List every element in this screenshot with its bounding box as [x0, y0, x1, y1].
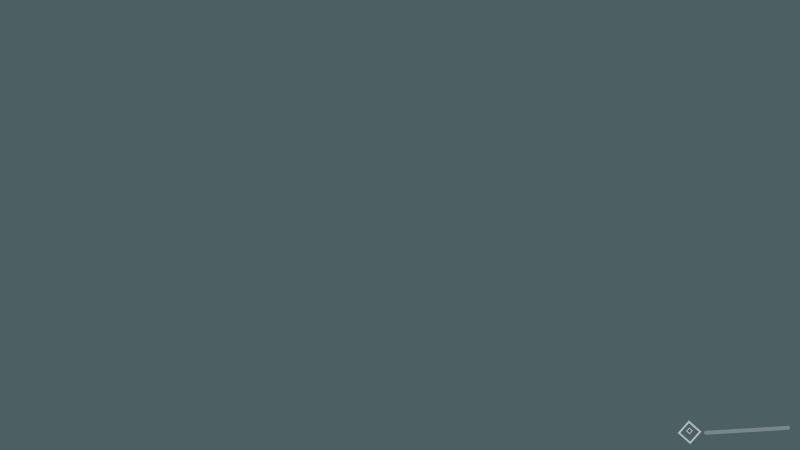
- masterplan-scene: [0, 0, 800, 450]
- masterplan-render: [0, 0, 800, 450]
